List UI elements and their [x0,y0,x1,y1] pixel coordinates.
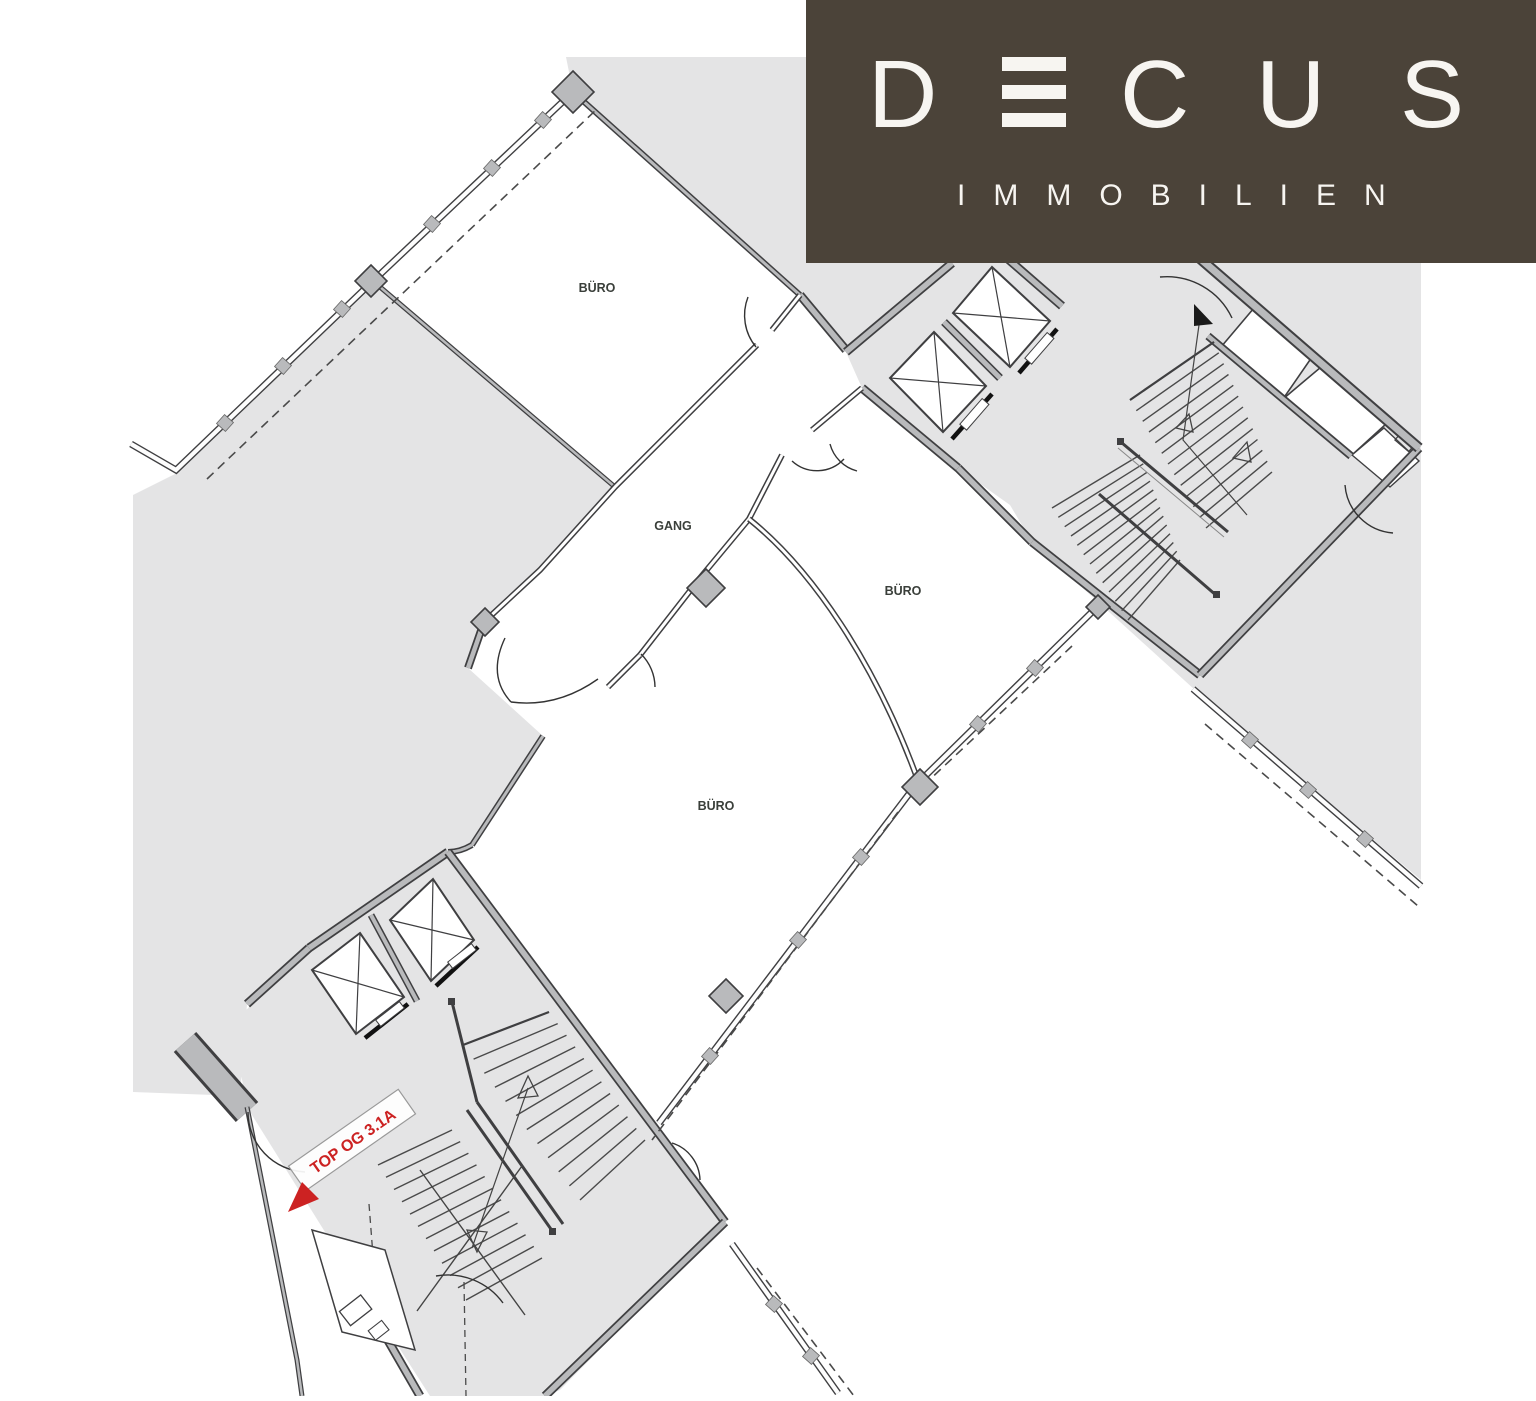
svg-text:C: C [1120,41,1189,148]
svg-text:D: D [868,41,937,148]
svg-text:U: U [1256,41,1325,148]
svg-text:S: S [1400,41,1464,148]
svg-text:BÜRO: BÜRO [579,280,616,295]
svg-text:BÜRO: BÜRO [698,798,735,813]
svg-text:GANG: GANG [654,519,692,533]
svg-text:BÜRO: BÜRO [885,583,922,598]
svg-text:IMMOBILIEN: IMMOBILIEN [957,179,1414,212]
